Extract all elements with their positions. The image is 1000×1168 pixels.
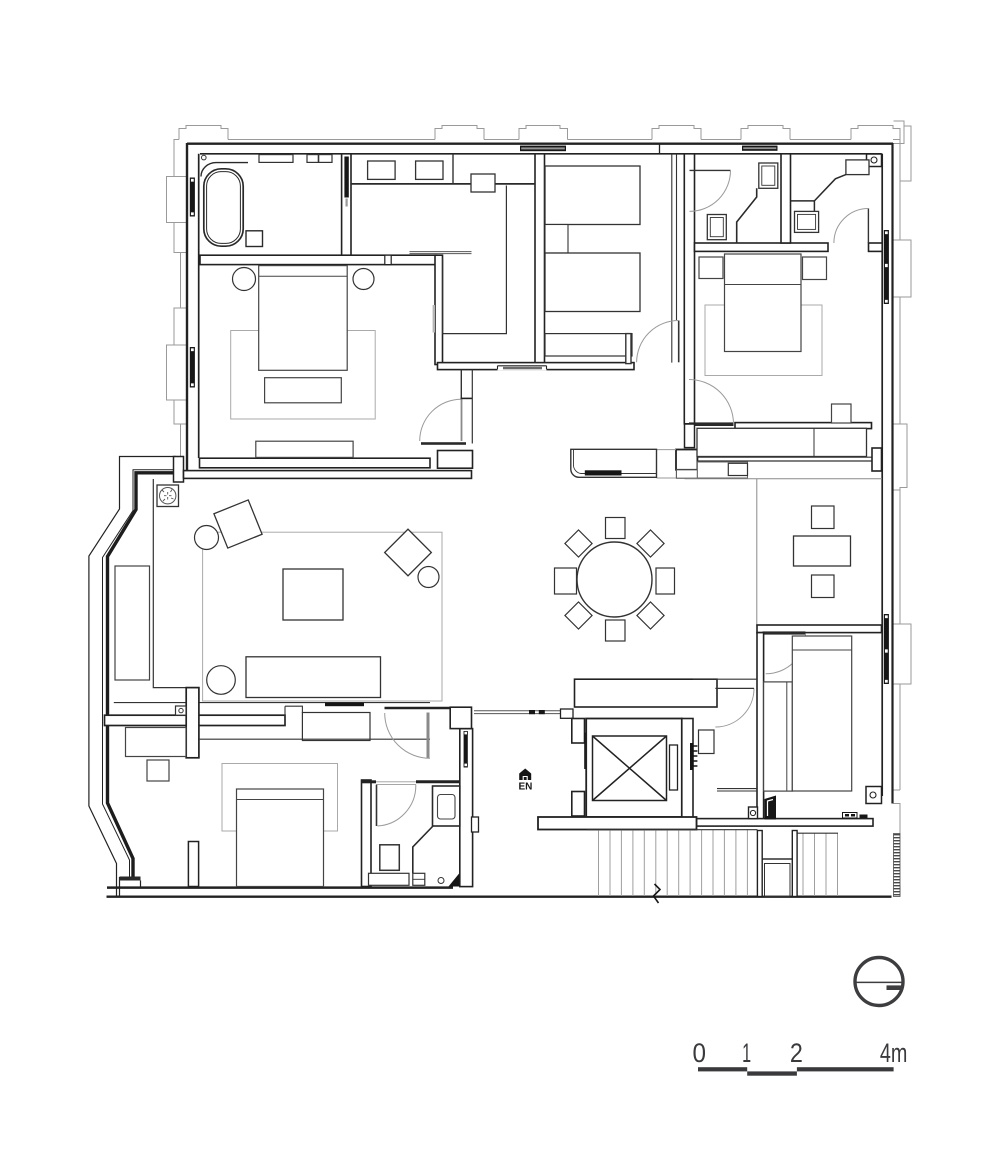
svg-text:2: 2 <box>790 1038 803 1068</box>
svg-text:0: 0 <box>692 1038 706 1068</box>
svg-text:EN: EN <box>518 782 532 793</box>
svg-text:1: 1 <box>742 1038 751 1068</box>
svg-text:4m: 4m <box>880 1038 908 1068</box>
